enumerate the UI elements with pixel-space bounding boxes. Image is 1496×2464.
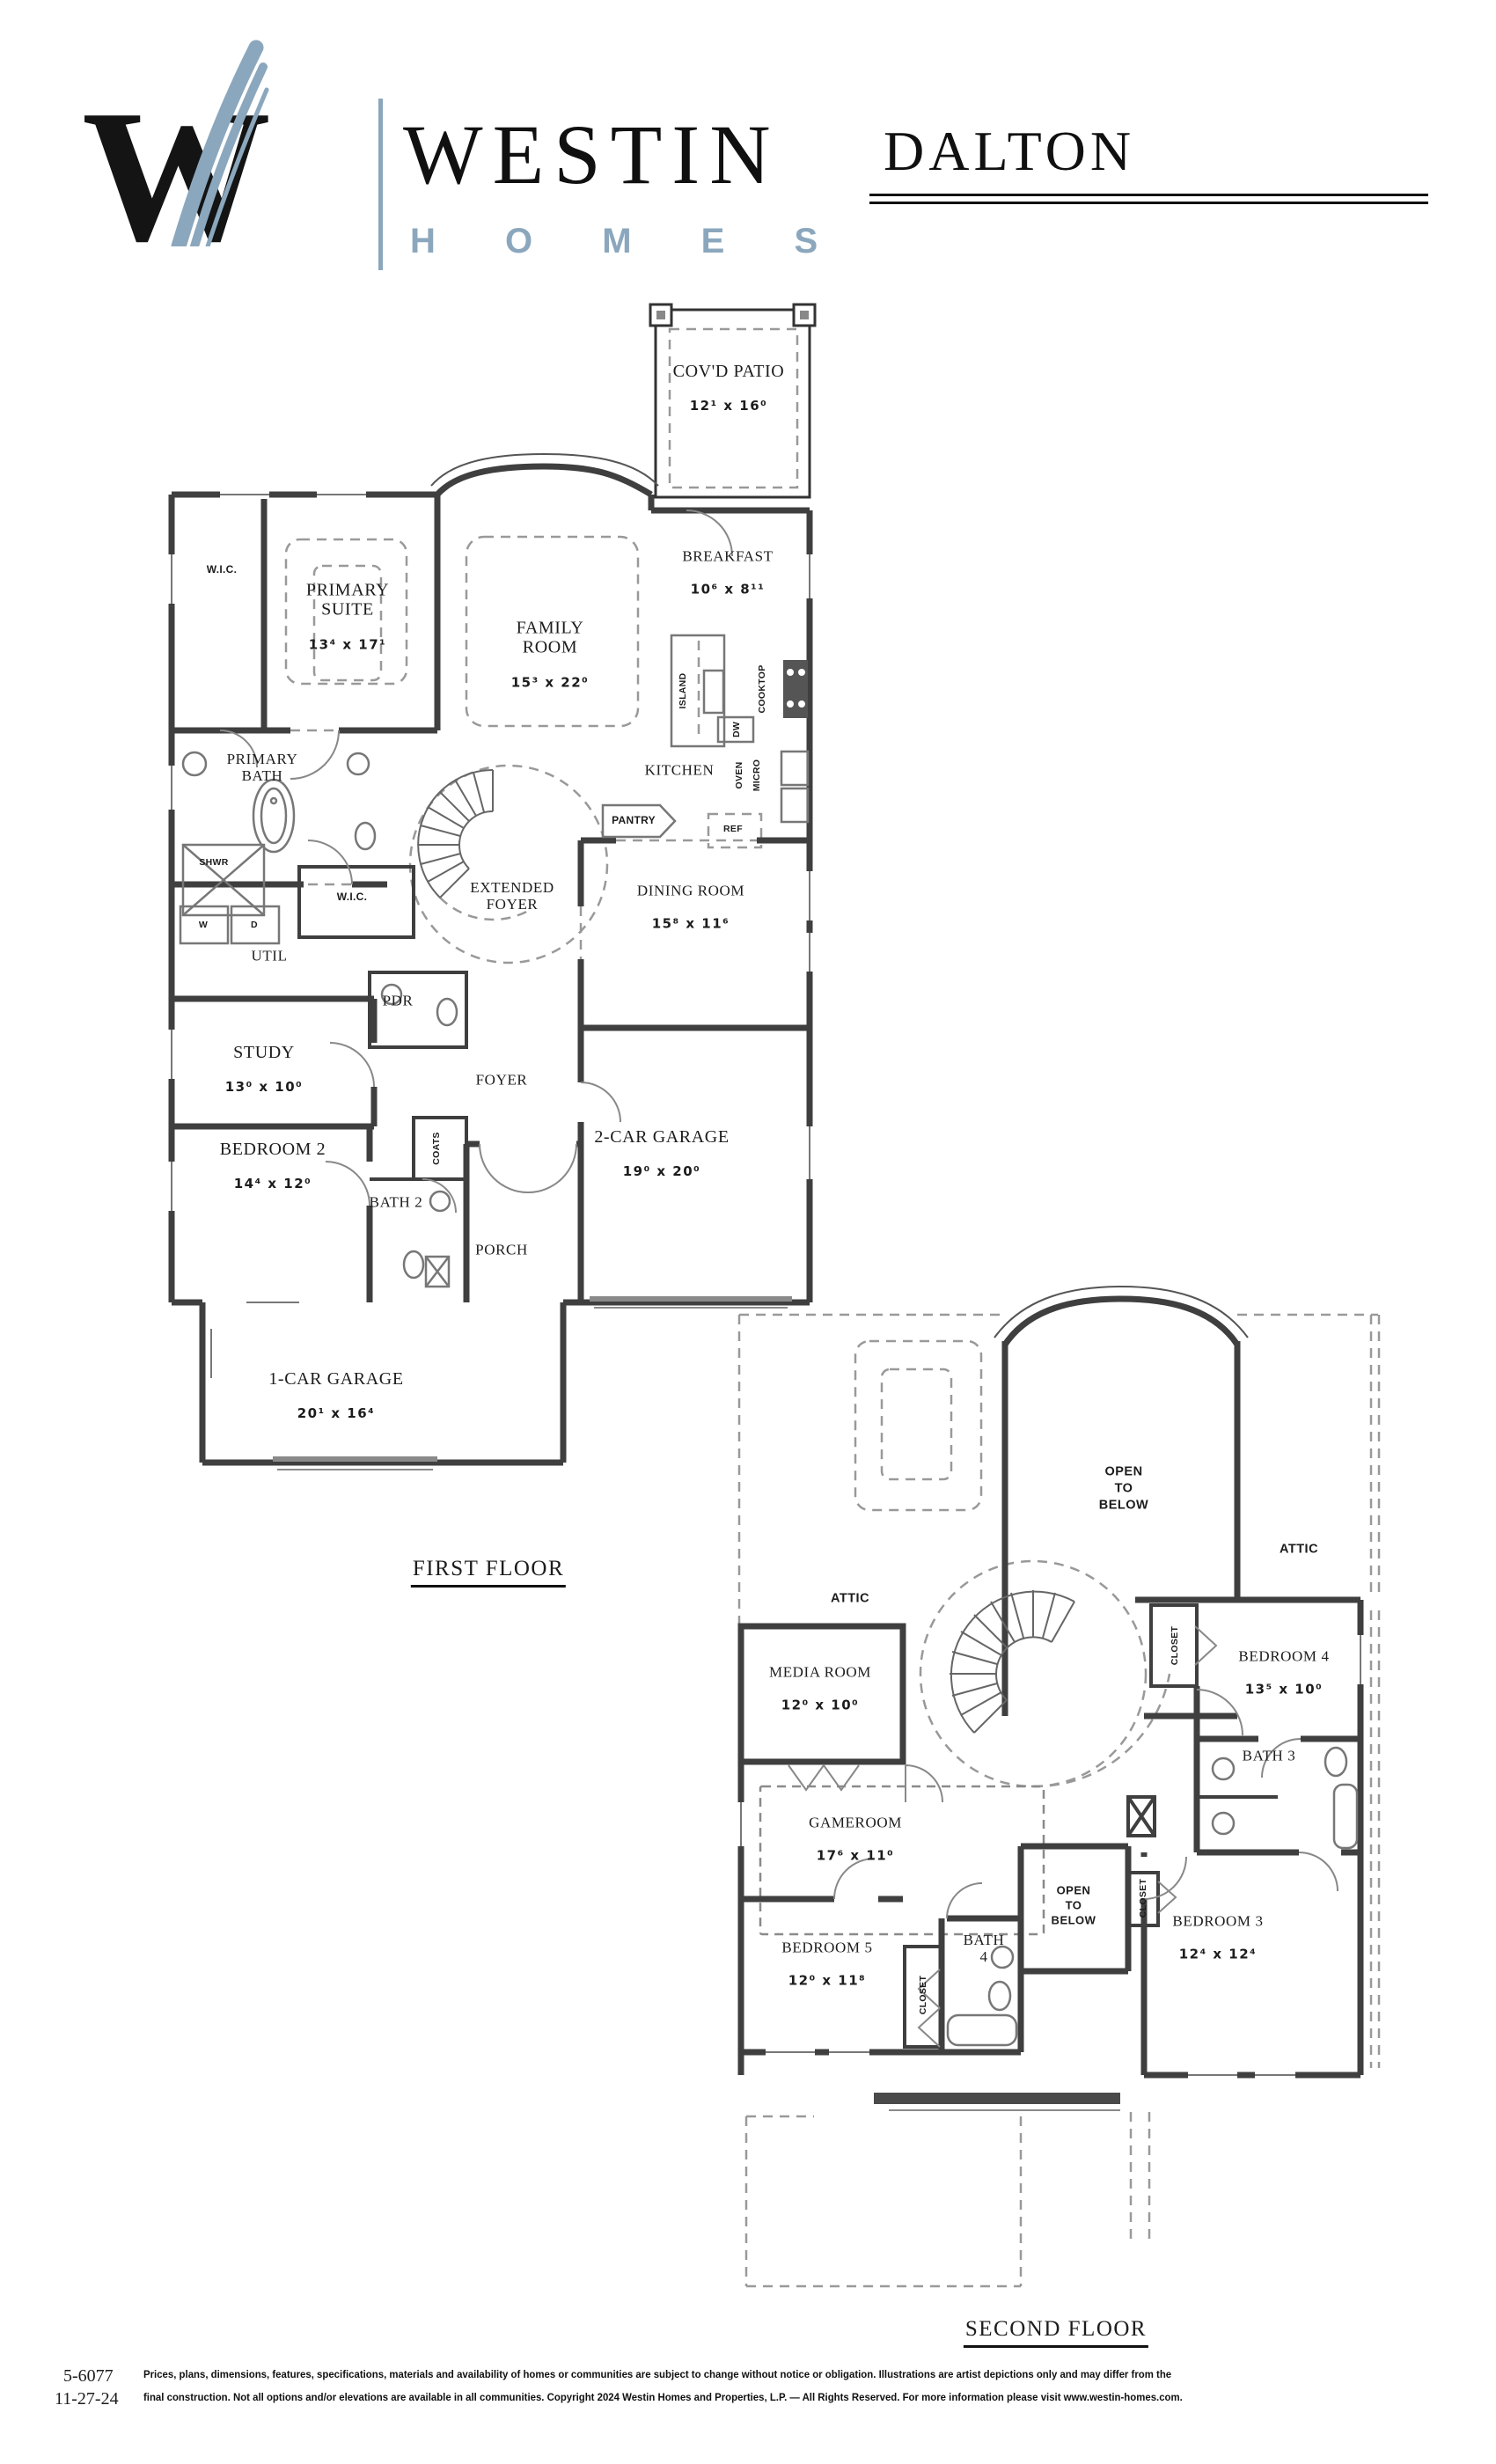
room-label-bedroom2: BEDROOM 2 14⁴ x 12⁰: [220, 1124, 326, 1210]
fixture-label-shwr: SHWR: [199, 857, 228, 868]
room-label-foyer: FOYER: [476, 1071, 528, 1088]
floorplan-sheet: { "header": { "monogram": "W", "brand": …: [0, 0, 1496, 2464]
fixture-label-washer: W: [199, 920, 208, 930]
room-label-bedroom3: BEDROOM 3 12⁴ x 12⁴: [1172, 1897, 1263, 1981]
closet-label-bedroom3: CLOSET: [1138, 1879, 1148, 1918]
room-label-bedroom4: BEDROOM 4 13⁵ x 10⁰: [1238, 1632, 1329, 1716]
room-label-study: STUDY 13⁰ x 10⁰: [225, 1027, 304, 1113]
area-label-attic-left: ATTIC: [831, 1591, 869, 1608]
fixture-label-dryer: D: [251, 920, 258, 930]
fixture-label-pantry: PANTRY: [612, 815, 656, 827]
room-label-kitchen: KITCHEN: [645, 761, 715, 778]
room-label-bath2: BATH 2: [370, 1193, 423, 1210]
room-label-wic2: W.I.C.: [337, 891, 367, 904]
fixture-label-cooktop: COOKTOP: [757, 665, 767, 714]
westin-logo-monogram: W: [75, 35, 374, 246]
plan-number: 5-6077: [63, 2365, 114, 2387]
page-title: DALTON: [884, 123, 1135, 180]
room-label-dining: DINING ROOM 15⁸ x 11⁶: [637, 867, 744, 950]
first-floor-title: FIRST FLOOR: [411, 1556, 566, 1588]
room-label-primary-suite: PRIMARY SUITE 13⁴ x 17¹: [306, 565, 389, 671]
header: W WESTIN H O M E S DALTON: [0, 0, 1496, 282]
title-underline: [869, 194, 1428, 204]
brand-name: WESTIN: [403, 113, 781, 197]
area-label-attic-right: ATTIC: [1280, 1542, 1318, 1558]
room-label-family-room: FAMILY ROOM 15³ x 22⁰: [511, 603, 590, 709]
room-label-gameroom: GAMEROOM 17⁶ x 11⁰: [809, 1799, 902, 1882]
room-label-wic1: W.I.C.: [207, 564, 237, 576]
curved-stair-second-floor: [950, 1590, 1074, 1733]
room-label-bath3: BATH 3: [1243, 1747, 1296, 1764]
room-label-breakfast: BREAKFAST 10⁶ x 8¹¹: [682, 532, 773, 616]
closet-label-bedroom4: CLOSET: [1170, 1626, 1180, 1665]
room-label-media: MEDIA ROOM 12⁰ x 10⁰: [769, 1648, 871, 1732]
disclaimer-line1: Prices, plans, dimensions, features, spe…: [143, 2369, 1171, 2380]
plan-date: 11-27-24: [55, 2388, 119, 2409]
brand-sub: H O M E S: [410, 224, 847, 259]
closet-label-bedroom5: CLOSET: [918, 1976, 928, 2014]
room-label-pdr: PDR: [383, 992, 414, 1008]
disclaimer-line2: final construction. Not all options and/…: [143, 2392, 1183, 2403]
floor-plan-second: ATTIC MEDIA ROOM 12⁰ x 10⁰ OPEN TO BELOW…: [730, 1276, 1390, 2358]
room-label-covd-patio: COV'D PATIO 12¹ x 16⁰: [673, 346, 785, 432]
room-label-primary-bath: PRIMARY BATH: [227, 735, 298, 800]
fixture-label-island: ISLAND: [678, 673, 688, 709]
fixture-label-coats: COATS: [431, 1132, 442, 1164]
room-label-extended-foyer: EXTENDED FOYER: [470, 863, 554, 928]
room-label-bath4: BATH 4: [964, 1932, 1005, 1965]
svg-text:W: W: [82, 70, 271, 246]
fixture-label-micro: MICRO: [752, 759, 762, 792]
room-label-bedroom5: BEDROOM 5 12⁰ x 11⁸: [781, 1924, 872, 2007]
fixture-label-ref: REF: [723, 824, 743, 834]
cooktop-fixture: [783, 660, 808, 718]
room-label-1car-garage: 1-CAR GARAGE 20¹ x 16⁴: [268, 1353, 403, 1440]
room-label-porch: PORCH: [475, 1241, 528, 1258]
area-label-open-to-below-bottom: OPEN TO BELOW: [1052, 1884, 1096, 1929]
room-label-2car-garage: 2-CAR GARAGE 19⁰ x 20⁰: [594, 1111, 729, 1198]
area-label-open-to-below-top: OPEN TO BELOW: [1099, 1464, 1148, 1514]
room-label-util: UTIL: [251, 947, 287, 964]
fixture-label-oven: OVEN: [734, 762, 744, 789]
logo-divider: [378, 99, 383, 270]
second-floor-title: SECOND FLOOR: [964, 2316, 1148, 2348]
fixture-label-dw: DW: [731, 722, 742, 737]
